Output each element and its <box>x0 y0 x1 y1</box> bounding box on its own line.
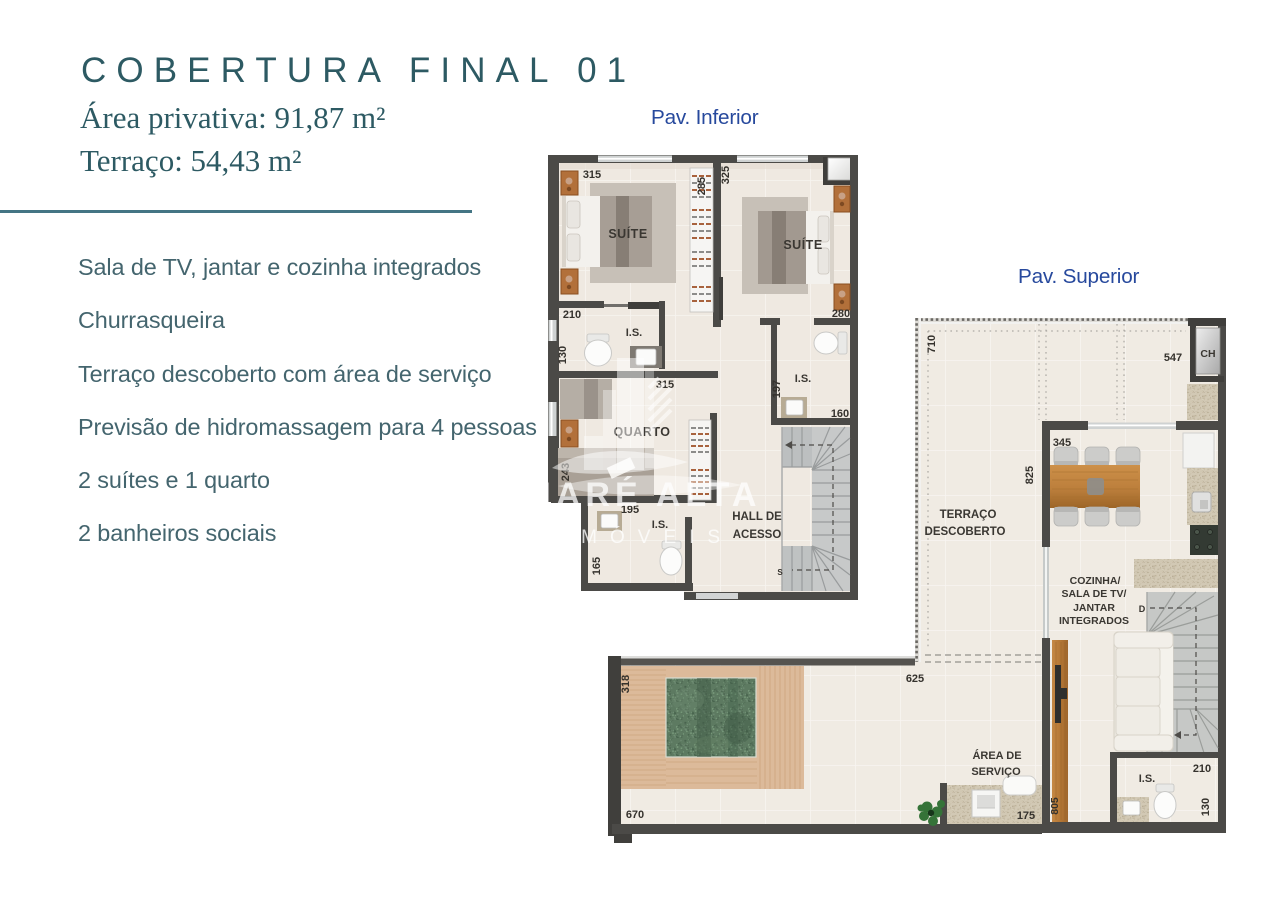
svg-text:547: 547 <box>1164 352 1182 364</box>
svg-text:INTEGRADOS: INTEGRADOS <box>1059 615 1129 627</box>
svg-text:625: 625 <box>906 673 924 685</box>
svg-text:825: 825 <box>1024 466 1036 484</box>
svg-text:IMÓVEIS: IMÓVEIS <box>563 526 733 548</box>
svg-text:130: 130 <box>1200 798 1212 816</box>
svg-text:TERRAÇO: TERRAÇO <box>940 509 997 521</box>
svg-text:175: 175 <box>1017 810 1035 822</box>
svg-text:670: 670 <box>626 809 644 821</box>
svg-text:210: 210 <box>563 309 581 321</box>
svg-text:ÁREA DE: ÁREA DE <box>972 749 1021 762</box>
svg-text:315: 315 <box>583 169 601 181</box>
svg-text:318: 318 <box>620 675 632 693</box>
svg-text:SUÍTE: SUÍTE <box>783 237 822 252</box>
svg-text:SALA DE TV/: SALA DE TV/ <box>1062 588 1127 600</box>
svg-text:I.S.: I.S. <box>1139 773 1156 785</box>
svg-text:DESCOBERTO: DESCOBERTO <box>925 526 1006 538</box>
svg-text:SUÍTE: SUÍTE <box>608 226 647 241</box>
svg-text:D: D <box>1139 604 1146 614</box>
svg-text:345: 345 <box>1053 437 1071 449</box>
svg-text:805: 805 <box>1049 797 1061 815</box>
svg-text:COZINHA/: COZINHA/ <box>1070 575 1121 587</box>
svg-text:SERVIÇO: SERVIÇO <box>971 766 1021 778</box>
svg-text:285: 285 <box>696 177 708 195</box>
svg-text:210: 210 <box>1193 763 1211 775</box>
svg-text:MARÉ ALTA: MARÉ ALTA <box>523 476 762 514</box>
svg-text:JANTAR: JANTAR <box>1073 602 1115 614</box>
svg-text:CH: CH <box>1200 348 1215 360</box>
svg-text:325: 325 <box>720 166 732 184</box>
svg-text:710: 710 <box>926 335 938 353</box>
